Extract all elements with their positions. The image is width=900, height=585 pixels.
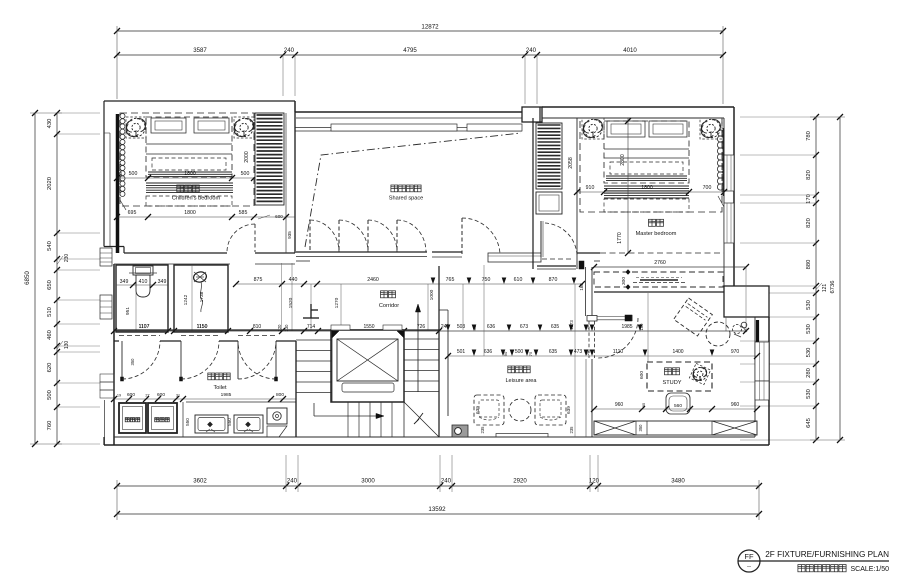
svg-text:500: 500 xyxy=(129,171,138,177)
svg-text:349: 349 xyxy=(158,279,167,285)
svg-text:45: 45 xyxy=(472,325,477,330)
svg-text:100: 100 xyxy=(639,323,644,331)
svg-text:2920: 2920 xyxy=(513,478,527,485)
svg-text:61: 61 xyxy=(118,171,123,176)
svg-text:880: 880 xyxy=(806,260,812,270)
svg-text:1738: 1738 xyxy=(199,291,205,302)
svg-text:875: 875 xyxy=(254,277,263,283)
svg-text:700: 700 xyxy=(703,185,712,191)
svg-text:935: 935 xyxy=(287,231,292,239)
svg-text:780: 780 xyxy=(806,131,812,141)
svg-text:500: 500 xyxy=(47,390,53,400)
svg-text:230: 230 xyxy=(64,254,70,263)
svg-text:530: 530 xyxy=(806,348,812,358)
svg-text:170: 170 xyxy=(806,194,812,204)
svg-text:2F FIXTURE/FURNISHING PLAN: 2F FIXTURE/FURNISHING PLAN xyxy=(765,550,889,559)
svg-text:1242: 1242 xyxy=(183,294,189,305)
svg-text:4010: 4010 xyxy=(623,47,637,54)
svg-text:500: 500 xyxy=(515,349,524,355)
svg-text:3480: 3480 xyxy=(671,478,685,485)
svg-text:503: 503 xyxy=(457,324,466,330)
svg-text:765: 765 xyxy=(446,277,455,283)
svg-text:810: 810 xyxy=(253,324,262,330)
svg-text:27: 27 xyxy=(145,394,149,398)
svg-text:85: 85 xyxy=(641,402,646,407)
svg-text:Toilet: Toilet xyxy=(213,385,227,391)
svg-text:1520: 1520 xyxy=(288,297,294,308)
svg-text:4795: 4795 xyxy=(403,47,417,54)
svg-text:750: 750 xyxy=(482,277,491,283)
svg-text:430: 430 xyxy=(47,119,53,129)
svg-text:31: 31 xyxy=(176,394,180,398)
svg-text:951: 951 xyxy=(125,307,131,315)
svg-text:Corridor: Corridor xyxy=(379,303,399,309)
svg-text:1150: 1150 xyxy=(197,324,208,330)
svg-text:530: 530 xyxy=(806,324,812,334)
svg-text:240: 240 xyxy=(526,47,537,54)
svg-text:SCALE:1/50: SCALE:1/50 xyxy=(850,566,889,573)
svg-text:2058: 2058 xyxy=(568,157,574,169)
svg-text:645: 645 xyxy=(806,418,812,428)
svg-text:13592: 13592 xyxy=(428,506,446,513)
svg-text:STUDY: STUDY xyxy=(663,380,682,386)
svg-text:240: 240 xyxy=(441,478,452,485)
svg-text:2020: 2020 xyxy=(47,177,53,190)
svg-text:1550: 1550 xyxy=(363,324,374,330)
svg-text:639: 639 xyxy=(566,406,571,414)
svg-text:350: 350 xyxy=(130,358,135,366)
svg-text:639: 639 xyxy=(475,406,480,414)
svg-text:550: 550 xyxy=(185,418,190,426)
svg-text:460: 460 xyxy=(47,330,53,340)
svg-text:280: 280 xyxy=(806,368,812,378)
svg-text:240: 240 xyxy=(287,478,298,485)
svg-text:501: 501 xyxy=(457,349,466,355)
svg-text:600: 600 xyxy=(157,392,165,398)
svg-text:90: 90 xyxy=(503,351,508,356)
svg-text:3602: 3602 xyxy=(193,478,207,485)
svg-text:510: 510 xyxy=(47,307,53,317)
svg-text:870: 870 xyxy=(549,277,558,283)
svg-text:1400: 1400 xyxy=(672,349,683,355)
svg-text:410: 410 xyxy=(139,279,148,285)
svg-text:714: 714 xyxy=(307,324,316,330)
svg-text:75: 75 xyxy=(528,351,533,356)
svg-text:3000: 3000 xyxy=(361,478,375,485)
svg-text:235: 235 xyxy=(480,426,485,434)
svg-text:820: 820 xyxy=(806,218,812,228)
svg-text:Master bedroom: Master bedroom xyxy=(636,231,677,237)
svg-text:Children's bedroom: Children's bedroom xyxy=(172,196,221,202)
svg-text:530: 530 xyxy=(806,389,812,399)
svg-text:1000: 1000 xyxy=(429,289,435,300)
svg-text:6850: 6850 xyxy=(24,271,31,285)
svg-text:636: 636 xyxy=(487,324,496,330)
svg-text:673: 673 xyxy=(520,324,529,330)
svg-text:1985: 1985 xyxy=(221,392,232,398)
svg-text:2800: 2800 xyxy=(620,154,626,166)
svg-text:560: 560 xyxy=(674,403,682,409)
svg-text:1985: 1985 xyxy=(621,324,632,330)
svg-text:3587: 3587 xyxy=(193,47,207,54)
svg-text:610: 610 xyxy=(514,277,523,283)
svg-text:500: 500 xyxy=(241,171,250,177)
svg-text:585: 585 xyxy=(239,210,248,216)
svg-text:Shared space: Shared space xyxy=(389,196,424,202)
svg-text:1800: 1800 xyxy=(184,171,196,177)
svg-text:820: 820 xyxy=(806,170,812,180)
svg-text:910: 910 xyxy=(586,185,595,191)
svg-text:FF: FF xyxy=(744,552,754,561)
svg-text:600: 600 xyxy=(639,371,645,379)
svg-text:160: 160 xyxy=(579,283,584,291)
svg-text:960: 960 xyxy=(615,402,624,408)
svg-text:540: 540 xyxy=(47,241,53,251)
svg-text:650: 650 xyxy=(47,280,53,290)
svg-text:1800: 1800 xyxy=(641,185,653,191)
svg-text:636: 636 xyxy=(484,349,493,355)
svg-text:2760: 2760 xyxy=(654,260,666,266)
svg-text:2460: 2460 xyxy=(367,277,379,283)
svg-text:620: 620 xyxy=(47,363,53,373)
svg-text:349: 349 xyxy=(120,279,129,285)
svg-text:12872: 12872 xyxy=(421,24,439,31)
svg-text:121: 121 xyxy=(822,284,828,293)
svg-text:300: 300 xyxy=(621,277,627,285)
svg-text:695: 695 xyxy=(128,210,137,216)
svg-text:19: 19 xyxy=(117,394,121,398)
svg-text:130: 130 xyxy=(64,341,70,350)
svg-text:440: 440 xyxy=(289,277,298,283)
svg-text:1770: 1770 xyxy=(617,232,623,244)
svg-text:800: 800 xyxy=(276,392,284,398)
svg-text:--: -- xyxy=(747,564,751,570)
svg-text:2000: 2000 xyxy=(244,151,250,163)
svg-text:235: 235 xyxy=(569,426,574,434)
svg-text:350: 350 xyxy=(638,424,643,432)
svg-text:635: 635 xyxy=(551,324,560,330)
svg-text:600: 600 xyxy=(127,392,135,398)
svg-text:760: 760 xyxy=(47,421,53,431)
svg-text:635: 635 xyxy=(549,349,558,355)
svg-text:1873: 1873 xyxy=(569,320,574,330)
svg-text:960: 960 xyxy=(731,402,740,408)
svg-text:1270: 1270 xyxy=(334,297,340,308)
svg-text:1800: 1800 xyxy=(184,210,196,216)
svg-text:6736: 6736 xyxy=(830,281,836,294)
svg-text:Leisure area: Leisure area xyxy=(505,378,537,384)
svg-text:240: 240 xyxy=(284,47,295,54)
svg-text:970: 970 xyxy=(731,349,740,355)
svg-text:530: 530 xyxy=(806,300,812,310)
svg-text:600: 600 xyxy=(275,214,283,219)
svg-text:1107: 1107 xyxy=(139,324,150,330)
